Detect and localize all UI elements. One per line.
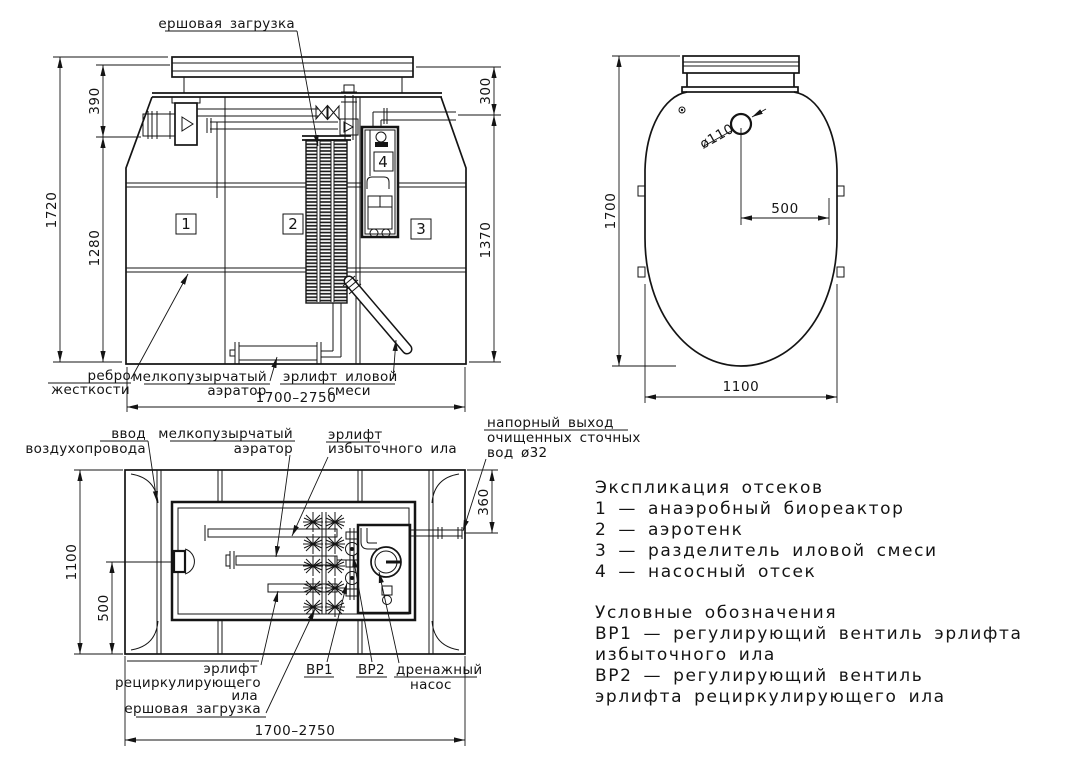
pump-compartment-front — [362, 127, 398, 237]
legend-item-1: 1 — анаэробный биореактор — [595, 499, 905, 519]
legend-symbols-line2: избыточного ила — [595, 645, 776, 665]
side-rib-tab — [837, 267, 844, 277]
excess-sludge-airlift-pipe — [208, 529, 337, 537]
label-aerator-front-line2: аэратор — [207, 383, 266, 399]
legend: Экспликация отсеков 1 — анаэробный биоре… — [595, 478, 1023, 707]
dim-plan-width: 1100 — [64, 544, 80, 581]
dim-plan-360: 360 — [476, 488, 492, 516]
legend-item-4: 4 — насосный отсек — [595, 562, 816, 582]
label-outlet-line3: вод ø32 — [487, 445, 547, 461]
valves-plan — [346, 528, 359, 600]
aerator-front — [230, 303, 341, 364]
compartment-1-number: 1 — [181, 215, 191, 233]
label-brush-load-front: ершовая загрузка — [158, 16, 295, 32]
dim-front-body: 1280 — [87, 230, 103, 267]
label-rib-line2: жесткости — [51, 382, 130, 398]
legend-symbols-line4: эрлифта рециркулирующего ила — [595, 687, 946, 707]
legend-title: Экспликация отсеков — [595, 478, 824, 498]
label-brush-load-plan: ершовая загрузка — [124, 701, 261, 717]
label-aerator-plan-line1: мелкопузырчатый — [158, 426, 293, 442]
label-air-inlet-line2: воздухопровода — [25, 441, 146, 457]
side-rib-tab — [638, 267, 645, 277]
label-valve1: ВР1 — [306, 662, 333, 678]
side-rib-tab — [638, 186, 645, 196]
dim-front-300: 300 — [478, 77, 494, 105]
dim-plan-length: 1700–2750 — [255, 723, 336, 739]
compartment-4-number: 4 — [378, 153, 388, 171]
dim-front-length: 1700–2750 — [256, 390, 337, 406]
sludge-airlift-pipe — [343, 276, 407, 349]
dimensions-front: 1720 390 1280 300 1370 1700–2750 — [44, 57, 501, 412]
brush-load-cassette-front — [302, 136, 351, 303]
float-switch-base — [375, 142, 388, 147]
tank-lid-front — [172, 57, 413, 93]
label-sludge-airlift-line2: смеси — [327, 383, 371, 399]
pipes-plan — [205, 525, 346, 592]
dim-front-1370: 1370 — [478, 222, 494, 259]
dim-top-width: 1100 — [723, 379, 760, 395]
pump-compartment-plan — [358, 525, 410, 613]
plan-view: 1100 500 360 1700–2750 ввод воздухопрово… — [25, 415, 640, 746]
label-drain-pump-line2: насос — [410, 677, 452, 693]
dim-hole-diameter: ø110 — [697, 121, 737, 153]
outlet-pipe-plan — [410, 527, 462, 539]
label-excess-airlift-line2: избыточного ила — [328, 441, 457, 457]
valve-icon — [328, 106, 339, 119]
label-outlet-line2: очищенных сточных — [487, 430, 641, 446]
compartment-3-number: 3 — [416, 220, 426, 238]
legend-symbols-title: Условные обозначения — [595, 603, 837, 623]
dim-front-neck: 390 — [87, 87, 103, 115]
dim-top-height: 1700 — [603, 193, 619, 230]
legend-item-2: 2 — аэротенк — [595, 520, 744, 540]
inlet-pipe — [143, 97, 200, 145]
label-air-inlet-line1: ввод — [111, 426, 146, 442]
label-aerator-plan-line2: аэратор — [234, 441, 293, 457]
label-outlet-line1: напорный выход — [487, 415, 614, 431]
compartment-2-number: 2 — [288, 215, 298, 233]
dimensions-top-view: ø110 1700 500 1100 — [603, 56, 837, 403]
front-elevation-view: 1 2 3 4 1720 390 1280 300 1370 — [44, 16, 501, 412]
legend-symbols-line1: ВР1 — регулирующий вентиль эрлифта — [595, 624, 1023, 644]
side-rib-tab — [837, 186, 844, 196]
top-view: ø110 1700 500 1100 — [603, 56, 844, 403]
technical-drawing-sheet: 1 2 3 4 1720 390 1280 300 1370 — [0, 0, 1080, 772]
label-valve2: ВР2 — [358, 662, 385, 678]
dim-front-total-height: 1720 — [44, 192, 60, 229]
septic-tank-drawing: 1 2 3 4 1720 390 1280 300 1370 — [0, 0, 1080, 772]
valve-icon — [316, 106, 327, 119]
legend-item-3: 3 — разделитель иловой смеси — [595, 541, 938, 561]
tank-lid-top — [682, 56, 799, 92]
legend-symbols-line3: ВР2 — регулирующий вентиль — [595, 666, 923, 686]
dim-plan-500: 500 — [96, 594, 112, 622]
dim-hole-offset: 500 — [771, 201, 799, 217]
inner-tank-plan — [172, 502, 415, 620]
air-inlet-plan — [174, 549, 194, 574]
label-drain-pump-line1: дренажный — [396, 662, 482, 678]
